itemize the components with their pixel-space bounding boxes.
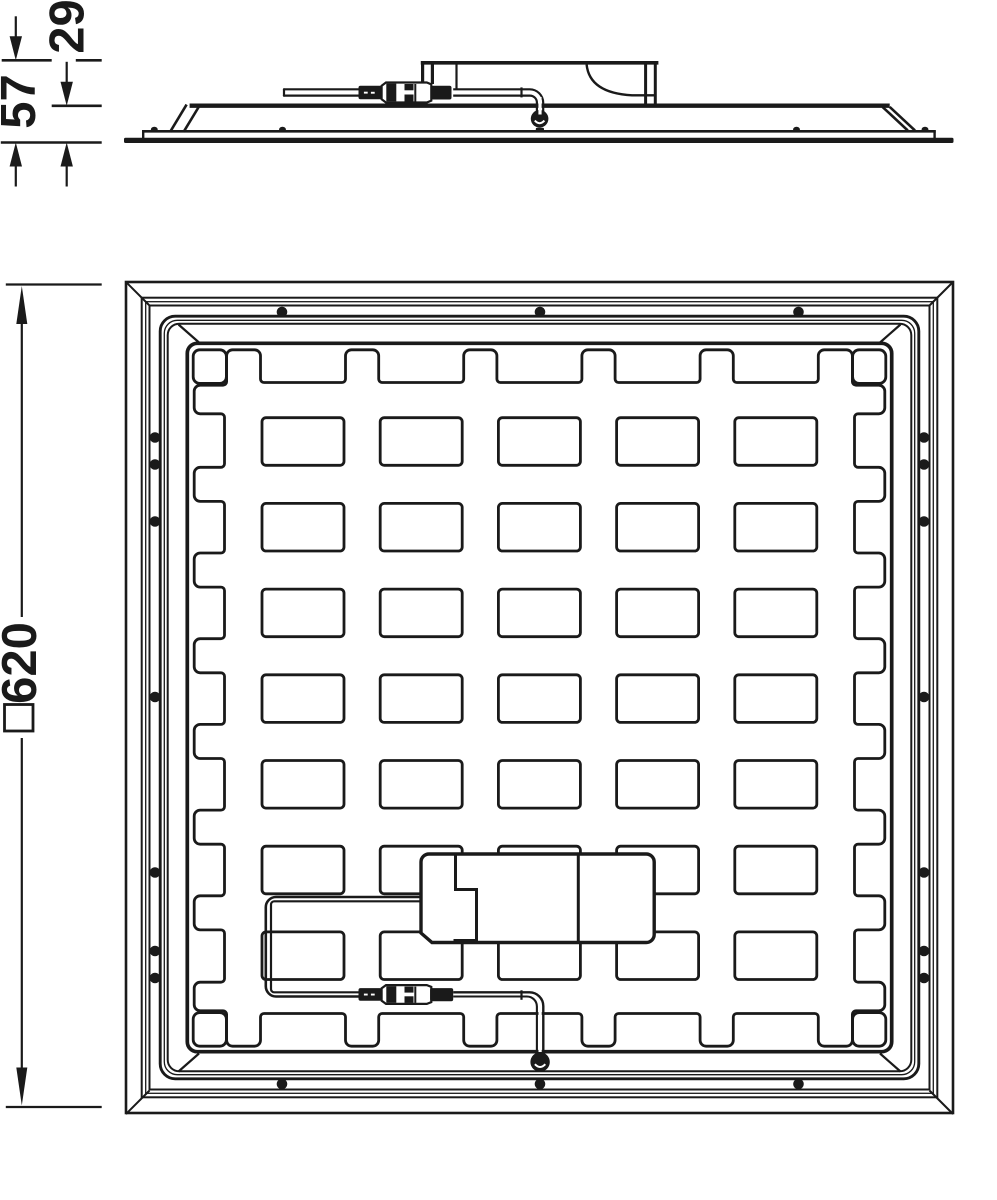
svg-text:57: 57	[0, 74, 46, 129]
svg-text:620: 620	[0, 622, 47, 704]
svg-text:29: 29	[40, 0, 94, 54]
